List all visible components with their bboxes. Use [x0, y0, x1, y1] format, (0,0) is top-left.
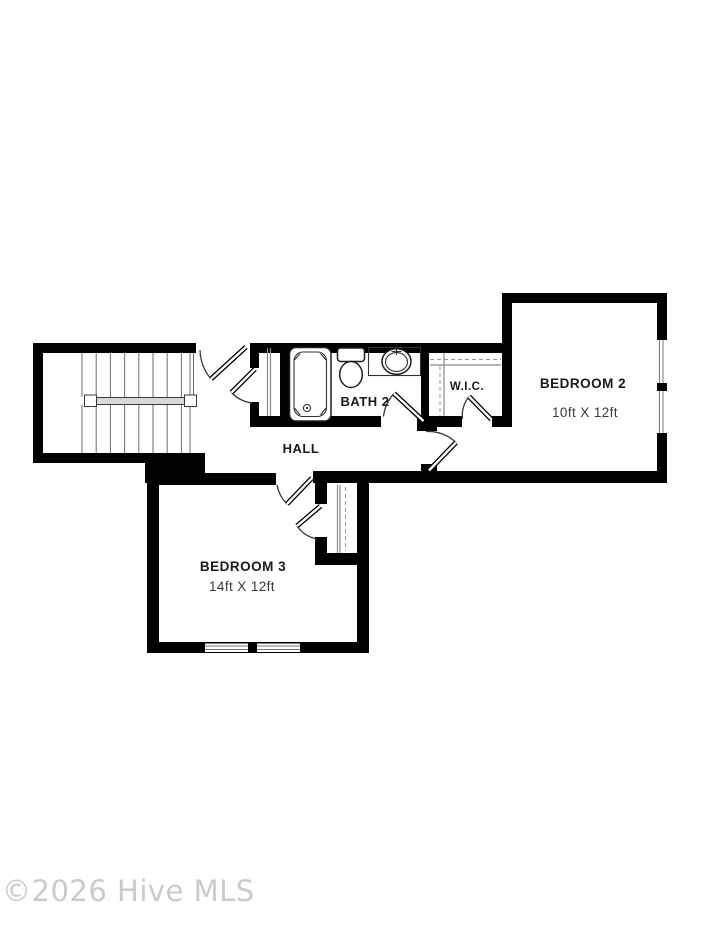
newel-post	[85, 395, 97, 407]
toilet-bowl	[340, 362, 363, 388]
staircase	[82, 353, 197, 453]
bedroom3-closet-door	[297, 506, 321, 539]
window	[257, 644, 300, 653]
walls	[33, 293, 667, 653]
wic-door	[462, 397, 491, 420]
door-swing-arc	[232, 393, 253, 404]
door-swing-arc	[462, 397, 469, 420]
handrail	[96, 398, 185, 405]
door-swing-arc	[277, 485, 287, 504]
linen-closet-shelves	[268, 348, 271, 416]
mls-watermark: ©2026 Hive MLS	[2, 874, 255, 908]
wall-segment	[502, 293, 512, 425]
floor-plan-drawing: HALL BATH 2 W.I.C. BEDROOM 2 10ft X 12ft…	[0, 0, 720, 932]
window	[657, 340, 668, 383]
wall-segment	[315, 537, 327, 565]
wall-segment	[250, 402, 259, 427]
linen-closet-door	[232, 369, 256, 403]
bedroom3-dimensions: 14ft X 12ft	[209, 579, 275, 594]
bath2-label: BATH 2	[341, 394, 390, 409]
bathtub	[290, 348, 332, 422]
wall-segment	[33, 343, 196, 353]
wall-segment	[357, 471, 369, 653]
wall-segment	[250, 343, 259, 368]
wall-segment	[657, 293, 667, 478]
wall-segment	[33, 343, 43, 463]
wall-segment	[280, 343, 290, 427]
wall-segment	[147, 473, 159, 653]
wall-segment	[502, 293, 667, 303]
toilet	[338, 348, 365, 388]
wall-segment	[33, 453, 160, 463]
bedroom2-label: BEDROOM 2	[540, 376, 626, 391]
hall-label: HALL	[283, 441, 320, 456]
door-swing-arc	[426, 431, 456, 442]
door-swing-arc	[200, 350, 211, 379]
bath-door	[384, 394, 424, 422]
door-swing-arc	[297, 526, 317, 539]
wall-segment	[315, 473, 327, 504]
floor-plan-page: HALL BATH 2 W.I.C. BEDROOM 2 10ft X 12ft…	[0, 0, 720, 932]
wall-segment	[429, 416, 462, 427]
wic-label: W.I.C.	[450, 381, 484, 393]
window	[205, 644, 248, 653]
newel-post	[185, 395, 197, 407]
bedroom2-dimensions: 10ft X 12ft	[552, 405, 618, 420]
window	[657, 391, 668, 433]
toilet-tank	[338, 348, 365, 362]
stair-door	[200, 347, 246, 379]
wall-segment	[421, 343, 429, 427]
bedroom3-closet-shelves	[338, 485, 346, 553]
bedroom3-label: BEDROOM 3	[200, 559, 286, 574]
bedroom3-door	[277, 478, 312, 504]
